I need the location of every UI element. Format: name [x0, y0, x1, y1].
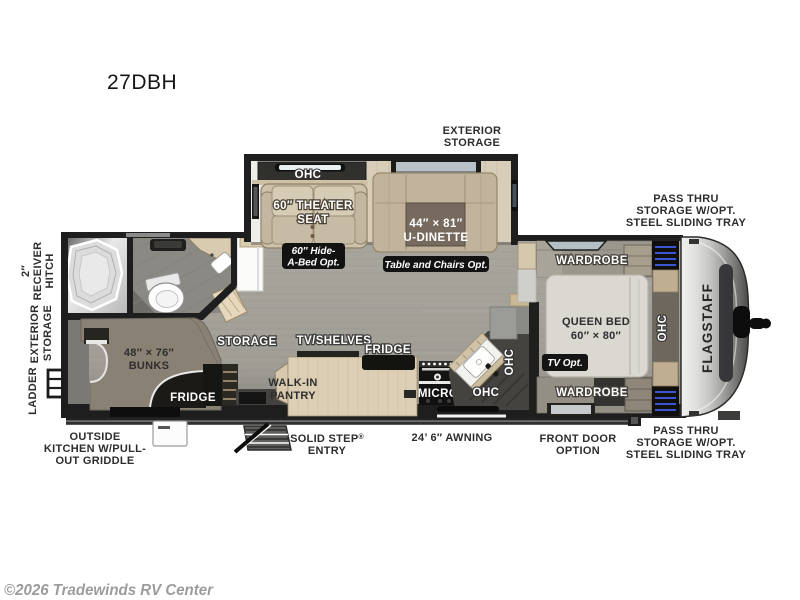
svg-text:27DBH: 27DBH [107, 71, 177, 94]
svg-text:OPTION: OPTION [556, 445, 600, 457]
svg-text:HITCH: HITCH [44, 253, 56, 288]
svg-text:2″: 2″ [20, 265, 32, 277]
svg-text:60″ × 80″: 60″ × 80″ [571, 330, 622, 342]
svg-text:OUTSIDE: OUTSIDE [70, 431, 121, 443]
svg-text:PASS THRU: PASS THRU [653, 425, 718, 437]
svg-text:60″ THEATER: 60″ THEATER [273, 200, 353, 212]
svg-text:48″ × 76″: 48″ × 76″ [124, 347, 175, 359]
svg-text:FRIDGE: FRIDGE [170, 392, 216, 404]
svg-text:FRONT DOOR: FRONT DOOR [540, 433, 617, 445]
svg-text:TV Opt.: TV Opt. [547, 358, 583, 369]
svg-text:44″ × 81″: 44″ × 81″ [409, 218, 462, 230]
svg-text:QUEEN BED: QUEEN BED [562, 316, 630, 328]
svg-text:TV/SHELVES: TV/SHELVES [297, 335, 372, 347]
svg-text:PASS THRU: PASS THRU [653, 193, 718, 205]
svg-text:BUNKS: BUNKS [129, 360, 170, 372]
svg-text:Table and Chairs Opt.: Table and Chairs Opt. [385, 260, 488, 271]
svg-text:SEAT: SEAT [297, 214, 328, 226]
svg-text:EXTERIOR: EXTERIOR [443, 125, 502, 137]
svg-text:STEEL SLIDING TRAY: STEEL SLIDING TRAY [626, 449, 747, 461]
svg-text:WARDROBE: WARDROBE [556, 255, 628, 267]
svg-text:LADDER: LADDER [27, 367, 39, 415]
svg-text:24’ 6″ AWNING: 24’ 6″ AWNING [412, 432, 493, 444]
svg-text:U-DINETTE: U-DINETTE [404, 232, 469, 244]
svg-text:WARDROBE: WARDROBE [556, 387, 628, 399]
svg-text:STORAGE W/OPT.: STORAGE W/OPT. [636, 437, 735, 449]
svg-text:STORAGE: STORAGE [42, 305, 54, 361]
svg-text:KITCHEN W/PULL-: KITCHEN W/PULL- [44, 443, 146, 455]
svg-text:60″ Hide-: 60″ Hide- [292, 246, 336, 257]
svg-text:OHC: OHC [657, 315, 669, 342]
svg-text:OHC: OHC [504, 349, 516, 376]
svg-text:ENTRY: ENTRY [308, 445, 347, 457]
svg-text:OHC: OHC [295, 169, 322, 181]
svg-text:FRIDGE: FRIDGE [365, 344, 411, 356]
svg-text:STORAGE: STORAGE [217, 336, 276, 348]
svg-text:OUT GRIDDLE: OUT GRIDDLE [55, 455, 134, 467]
svg-text:WALK-IN: WALK-IN [268, 377, 317, 389]
svg-text:A-Bed Opt.: A-Bed Opt. [286, 258, 339, 269]
svg-text:FLAGSTAFF: FLAGSTAFF [700, 283, 715, 373]
svg-text:EXTERIOR: EXTERIOR [29, 305, 41, 364]
svg-text:RECEIVER: RECEIVER [32, 242, 44, 301]
svg-text:— SUPER LITE —: — SUPER LITE — [720, 302, 726, 354]
svg-text:STEEL SLIDING TRAY: STEEL SLIDING TRAY [626, 217, 747, 229]
svg-text:©2026 Tradewinds RV Center: ©2026 Tradewinds RV Center [4, 582, 214, 599]
svg-text:STORAGE W/OPT.: STORAGE W/OPT. [636, 205, 735, 217]
svg-text:PANTRY: PANTRY [270, 390, 316, 402]
svg-text:SOLID STEP®: SOLID STEP® [290, 433, 364, 445]
svg-text:STORAGE: STORAGE [444, 137, 500, 149]
svg-text:OHC: OHC [473, 387, 500, 399]
